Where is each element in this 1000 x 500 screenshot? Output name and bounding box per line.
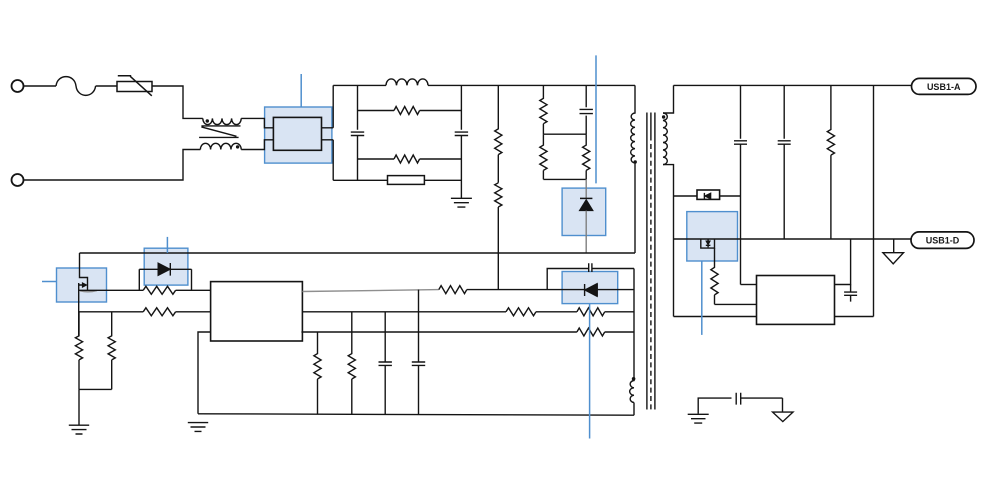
svg-text:USB1-D: USB1-D xyxy=(926,236,960,246)
svg-text:USB1-A: USB1-A xyxy=(927,82,961,92)
